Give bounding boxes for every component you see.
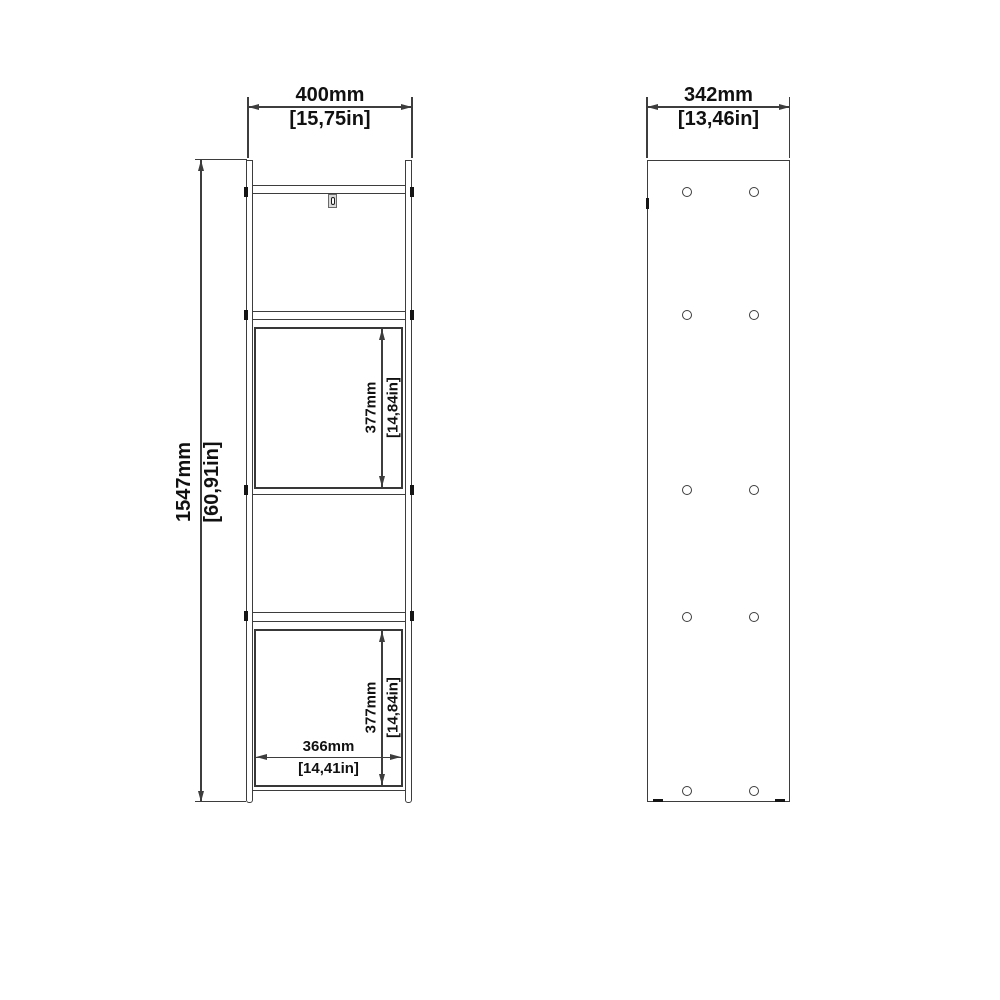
inner-width-dimension-line bbox=[256, 757, 401, 758]
front-width-inch-label: [15,75in] bbox=[248, 109, 412, 129]
keyhole-slot-hole bbox=[331, 197, 335, 205]
top-shelf bbox=[253, 185, 405, 194]
front-width-mm-label: 400mm bbox=[248, 85, 412, 105]
left-side-panel bbox=[246, 160, 253, 803]
shelf-pin-hole bbox=[682, 612, 692, 622]
shelf-pin-hole bbox=[749, 187, 759, 197]
cam-lock-mark bbox=[410, 485, 414, 495]
upper-compartment-mm-label: 377mm bbox=[364, 373, 379, 443]
arrowhead-up-icon bbox=[198, 160, 204, 171]
middle-shelf-line bbox=[253, 494, 405, 495]
shelf-pin-hole bbox=[682, 485, 692, 495]
arrowhead-down-icon bbox=[379, 476, 385, 487]
arrowhead-up-icon bbox=[379, 329, 385, 340]
technical-drawing: 400mm [15,75in] 1547mm [60,91in] bbox=[0, 0, 1000, 1000]
bottom-shelf-line bbox=[253, 790, 405, 791]
shelf-pin-hole bbox=[749, 786, 759, 796]
cam-lock-mark bbox=[244, 611, 248, 621]
arrowhead-up-icon bbox=[379, 631, 385, 642]
side-depth-inch-label: [13,46in] bbox=[647, 109, 790, 129]
upper-compartment-dimension-line bbox=[381, 329, 382, 487]
inner-width-mm-label: 366mm bbox=[256, 739, 401, 754]
arrowhead-right-icon bbox=[390, 754, 401, 760]
keyhole-edge-mark bbox=[646, 198, 650, 209]
shelf-pin-hole bbox=[682, 187, 692, 197]
cam-lock-mark bbox=[410, 187, 414, 197]
shelf-pin-hole bbox=[749, 485, 759, 495]
right-side-panel bbox=[405, 160, 412, 803]
lower-compartment-inch-label: [14,84in] bbox=[386, 673, 401, 743]
lower-compartment-mm-label: 377mm bbox=[364, 673, 379, 743]
shelf-pin-hole bbox=[749, 310, 759, 320]
lower-shelf bbox=[253, 612, 405, 622]
arrowhead-down-icon bbox=[198, 791, 204, 802]
cam-lock-mark bbox=[244, 485, 248, 495]
front-height-inch-label: [60,91in] bbox=[202, 427, 222, 537]
foot-mark bbox=[775, 799, 785, 803]
shelf-pin-hole bbox=[682, 786, 692, 796]
side-panel-outline bbox=[647, 160, 790, 802]
side-depth-mm-label: 342mm bbox=[647, 85, 790, 105]
shelf-pin-hole bbox=[749, 612, 759, 622]
upper-compartment-inch-label: [14,84in] bbox=[386, 373, 401, 443]
cam-lock-mark bbox=[244, 187, 248, 197]
cam-lock-mark bbox=[410, 310, 414, 320]
cam-lock-mark bbox=[244, 310, 248, 320]
cam-lock-mark bbox=[410, 611, 414, 621]
shelf-pin-hole bbox=[682, 310, 692, 320]
inner-width-inch-label: [14,41in] bbox=[256, 761, 401, 776]
front-height-mm-label: 1547mm bbox=[174, 427, 194, 537]
upper-shelf bbox=[253, 311, 405, 320]
arrowhead-left-icon bbox=[256, 754, 267, 760]
foot-mark bbox=[653, 799, 663, 803]
keyhole-slot-icon bbox=[328, 194, 337, 208]
